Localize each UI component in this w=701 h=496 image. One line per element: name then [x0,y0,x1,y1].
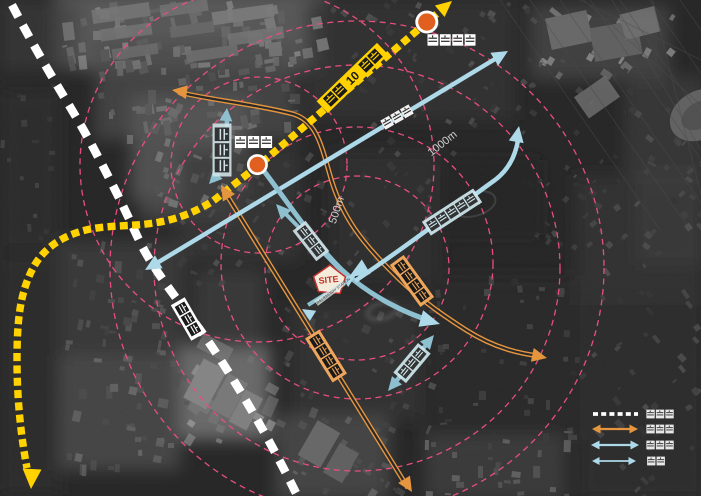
svg-text:SITE: SITE [318,274,339,286]
